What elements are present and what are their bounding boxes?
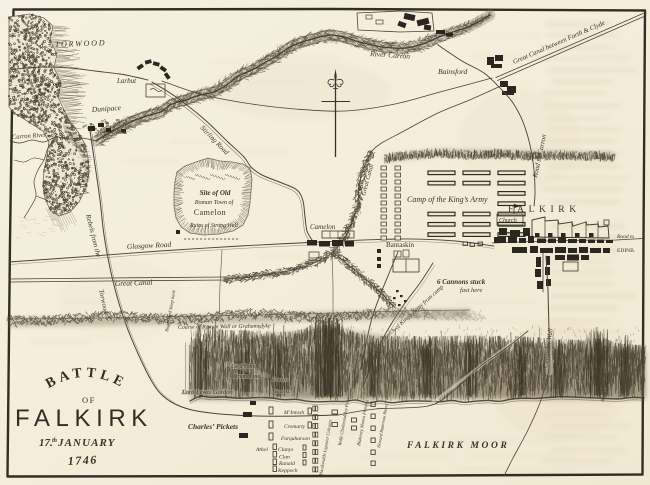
svg-text:Camelon: Camelon xyxy=(194,208,226,217)
svg-text:Ruins of Strong Wall: Ruins of Strong Wall xyxy=(189,222,238,229)
svg-text:Charles’ Pickets: Charles’ Pickets xyxy=(188,422,238,431)
svg-text:Church: Church xyxy=(499,218,517,224)
svg-text:Frasers: Frasers xyxy=(271,377,289,383)
svg-text:OF: OF xyxy=(82,395,96,405)
svg-text:Farquharson: Farquharson xyxy=(280,436,310,442)
svg-text:th: th xyxy=(52,438,58,444)
svg-text:Cromarty: Cromarty xyxy=(284,424,306,430)
svg-text:Roman Town of: Roman Town of xyxy=(194,199,235,206)
svg-text:Clunys: Clunys xyxy=(278,447,293,453)
svg-text:Stuarts: Stuarts xyxy=(274,389,290,395)
svg-text:FALKIRK: FALKIRK xyxy=(15,405,153,432)
svg-text:Camelon: Camelon xyxy=(310,223,336,231)
svg-text:Bainsford: Bainsford xyxy=(438,67,468,76)
svg-text:EDINB.: EDINB. xyxy=(617,248,636,254)
svg-text:Ranald: Ranald xyxy=(278,461,295,467)
svg-text:6 Cannons stuck: 6 Cannons stuck xyxy=(437,278,486,286)
svg-text:Larbut: Larbut xyxy=(116,77,137,85)
svg-text:1746: 1746 xyxy=(67,452,98,468)
svg-text:Lord Lewis Gordon: Lord Lewis Gordon xyxy=(181,389,233,396)
svg-text:Camp of the King’s Army: Camp of the King’s Army xyxy=(407,195,488,204)
svg-text:Great Canal: Great Canal xyxy=(115,278,153,288)
svg-text:FALKIRK MOOR: FALKIRK MOOR xyxy=(406,441,509,451)
svg-text:M’Intosh: M’Intosh xyxy=(283,410,304,416)
svg-text:Athol: Athol xyxy=(255,447,268,453)
svg-text:Clan: Clan xyxy=(279,455,290,461)
svg-text:Lees: Lees xyxy=(23,77,32,82)
svg-text:JANUARY: JANUARY xyxy=(57,437,116,449)
svg-text:Drummond: Drummond xyxy=(232,374,261,380)
svg-text:17.: 17. xyxy=(39,437,53,449)
svg-text:Site of Old: Site of Old xyxy=(200,189,231,197)
svg-text:Lord John: Lord John xyxy=(230,364,256,370)
svg-text:Bantaskin: Bantaskin xyxy=(386,241,414,249)
svg-text:TORWOOD: TORWOOD xyxy=(55,38,107,49)
svg-text:fast here: fast here xyxy=(460,287,482,294)
svg-text:Keppoch: Keppoch xyxy=(277,468,298,474)
svg-text:Road to: Road to xyxy=(616,234,635,240)
